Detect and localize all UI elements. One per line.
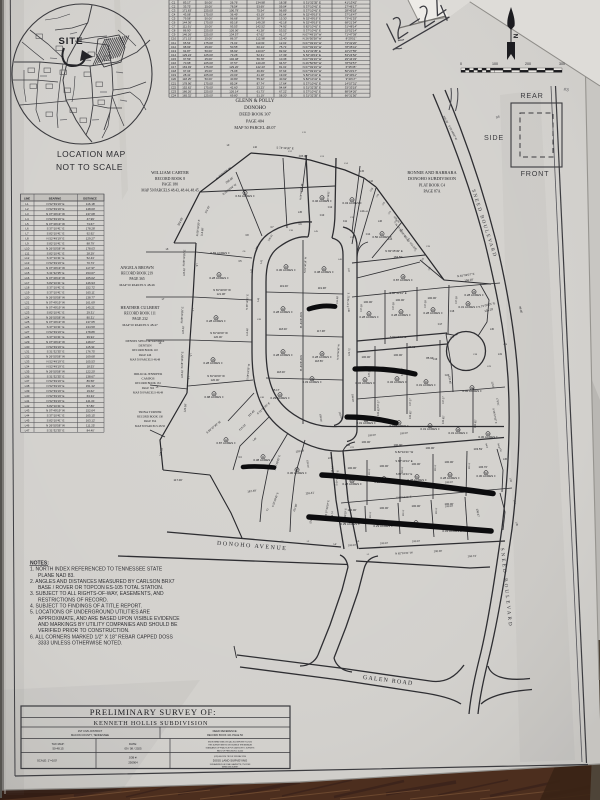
svg-text:0.61 ACRES ±: 0.61 ACRES ± [235, 194, 255, 198]
svg-text:N 07°49'19" W: N 07°49'19" W [46, 222, 65, 226]
svg-text:L15: L15 [360, 170, 365, 173]
svg-text:0.31 ACRES ±: 0.31 ACRES ± [416, 383, 436, 387]
svg-text:L31: L31 [25, 350, 30, 354]
svg-text:S 82°10'41" E: S 82°10'41" E [396, 472, 413, 476]
svg-text:0.31 ACRES ±: 0.31 ACRES ± [356, 421, 376, 425]
svg-text:RECORD BOOK 111: RECORD BOOK 111 [124, 312, 156, 316]
svg-text:JOB #:: JOB #: [129, 756, 138, 760]
svg-text:C11: C11 [343, 220, 348, 223]
svg-text:L40: L40 [25, 394, 30, 398]
svg-text:111.25': 111.25' [86, 424, 95, 428]
svg-text:165.32': 165.32' [182, 93, 192, 97]
svg-text:L23: L23 [25, 310, 30, 314]
svg-text:146.94': 146.94' [86, 281, 96, 285]
svg-text:152.64': 152.64' [86, 409, 96, 413]
svg-text:S 37°10'41" E: S 37°10'41" E [47, 286, 65, 290]
svg-text:N 52°49'19" E: N 52°49'19" E [46, 202, 64, 206]
svg-text:L15: L15 [25, 271, 30, 275]
svg-text:L29: L29 [25, 340, 30, 344]
svg-text:100.00': 100.00' [361, 355, 371, 359]
svg-text:2. ANGLES AND DISTANCES MEASU: 2. ANGLES AND DISTANCES MEASURED BY CARL… [30, 579, 175, 585]
svg-text:L39: L39 [25, 389, 30, 393]
svg-text:125.00': 125.00' [204, 93, 214, 97]
svg-text:S 31°32'35" E: S 31°32'35" E [47, 350, 65, 354]
svg-text:N 07°49'19" W: N 07°49'19" W [46, 305, 65, 309]
svg-text:L28: L28 [25, 335, 30, 339]
svg-text:0.38 ACRES ±: 0.38 ACRES ± [253, 458, 273, 462]
svg-text:PAGE 362: PAGE 362 [142, 386, 155, 390]
svg-text:165.11': 165.11' [86, 291, 96, 295]
svg-text:N 81°40'09" W: N 81°40'09" W [299, 312, 302, 329]
svg-text:86.61': 86.61' [408, 345, 416, 349]
svg-text:148.00': 148.00' [86, 207, 96, 211]
svg-text:L46: L46 [25, 424, 30, 428]
svg-text:NOT TO SCALE: NOT TO SCALE [56, 162, 123, 172]
svg-text:L18: L18 [25, 286, 30, 290]
svg-text:L10: L10 [253, 146, 258, 149]
svg-text:L44: L44 [25, 414, 30, 418]
svg-text:S 37°10'41" E: S 37°10'41" E [47, 325, 65, 329]
svg-text:S 82°10'41" E: S 82°10'41" E [390, 335, 407, 339]
svg-text:N 07°49'19" W: N 07°49'19" W [46, 212, 65, 216]
svg-text:S 82°10'41" E: S 82°10'41" E [47, 281, 65, 285]
svg-text:105.00': 105.00' [181, 369, 184, 378]
svg-text:100.00': 100.00' [348, 544, 357, 547]
svg-text:L11: L11 [25, 251, 30, 255]
svg-text:100.00': 100.00' [395, 298, 405, 302]
svg-text:117.38': 117.38' [317, 329, 326, 333]
svg-text:PLANE NAD 83.: PLANE NAD 83. [38, 573, 75, 579]
svg-text:L37: L37 [328, 457, 333, 460]
svg-text:100.00': 100.00' [363, 300, 373, 304]
svg-text:L24: L24 [25, 315, 30, 319]
svg-text:106.08': 106.08' [298, 154, 308, 158]
svg-text:N 07°49'19" W: N 07°49'19" W [46, 320, 65, 324]
svg-text:L5: L5 [25, 222, 29, 226]
svg-text:134.82': 134.82' [473, 419, 478, 428]
svg-text:0.28 ACRES ±: 0.28 ACRES ± [209, 276, 229, 280]
svg-text:VERIFIED PRIOR TO CONSTRUCTION: VERIFIED PRIOR TO CONSTRUCTION. [38, 628, 130, 634]
svg-text:105.53': 105.53' [86, 360, 96, 364]
svg-text:63.34': 63.34' [87, 394, 95, 398]
svg-text:L1: L1 [25, 202, 29, 206]
svg-text:L38: L38 [25, 384, 30, 388]
svg-text:6. ALL CORNERS MARKED 1/2" X: 6. ALL CORNERS MARKED 1/2" X 18" REBAR C… [30, 634, 174, 640]
svg-text:C12: C12 [328, 206, 333, 209]
svg-text:0.28 ACRES ±: 0.28 ACRES ± [423, 311, 443, 315]
svg-text:MAP 50 PARCELS 48.50: MAP 50 PARCELS 48.50 [135, 424, 166, 428]
svg-text:50-48.15: 50-48.15 [52, 747, 63, 751]
svg-text:250904: 250904 [128, 761, 138, 765]
svg-text:PAGE 654: PAGE 654 [144, 419, 157, 423]
svg-text:DONOHO SUBDIVISION: DONOHO SUBDIVISION [408, 176, 457, 181]
svg-text:S 31°32'35" E: S 31°32'35" E [47, 428, 65, 432]
svg-text:124.58': 124.58' [183, 403, 188, 413]
svg-text:103.59': 103.59' [473, 447, 483, 451]
svg-text:100.00': 100.00' [361, 440, 371, 444]
svg-text:178.28': 178.28' [86, 227, 96, 231]
svg-text:L9: L9 [25, 242, 29, 246]
svg-text:N 52°49'19" E: N 52°49'19" E [46, 261, 64, 265]
svg-text:S 37°10'41" E: S 37°10'41" E [47, 256, 65, 260]
svg-text:N 26°50'58" W: N 26°50'58" W [46, 355, 65, 359]
svg-text:C18: C18 [450, 310, 455, 313]
svg-text:RECORD BOOK 110: RECORD BOOK 110 [132, 348, 158, 352]
svg-text:S 82°10'41" E: S 82°10'41" E [395, 459, 412, 463]
svg-text:0.28 ACRES ±: 0.28 ACRES ± [342, 482, 362, 486]
svg-text:L3: L3 [25, 212, 29, 216]
svg-text:120.00': 120.00' [214, 335, 223, 339]
svg-text:KENNETH HOLLIS SUBDIVISION: KENNETH HOLLIS SUBDIVISION [94, 720, 209, 727]
svg-text:N 26°50'58" W: N 26°50'58" W [46, 424, 65, 428]
svg-text:L8: L8 [25, 237, 29, 241]
svg-text:0.28 ACRES ±: 0.28 ACRES ± [273, 353, 293, 357]
svg-text:L14: L14 [25, 266, 30, 270]
svg-text:IDILIO & JENNIFER: IDILIO & JENNIFER [134, 372, 163, 376]
svg-text:TAX MAP:: TAX MAP: [52, 742, 65, 746]
svg-text:FRONT: FRONT [521, 169, 550, 178]
svg-text:N 26°50'58" W: N 26°50'58" W [46, 315, 65, 319]
svg-text:DATE:: DATE: [129, 742, 137, 746]
svg-text:PAGE 232: PAGE 232 [132, 317, 148, 321]
svg-text:103.72': 103.72' [348, 347, 352, 356]
svg-text:0.32 ACRES ±: 0.32 ACRES ± [355, 381, 375, 385]
svg-text:100.00': 100.00' [411, 462, 421, 466]
svg-text:L27: L27 [25, 330, 30, 334]
svg-text:WWW.DOSS.SURVEY: WWW.DOSS.SURVEY [222, 767, 239, 769]
svg-text:80.31': 80.31' [87, 315, 95, 319]
svg-text:N 07°49'19" W: N 07°49'19" W [46, 340, 65, 344]
svg-text:28.29': 28.29' [87, 251, 95, 255]
svg-text:L35: L35 [25, 369, 30, 373]
svg-text:122.20': 122.20' [86, 369, 96, 373]
svg-text:39.94': 39.94' [87, 335, 95, 339]
svg-text:RESTRICTIONS OF RECORD.: RESTRICTIONS OF RECORD. [38, 597, 108, 603]
svg-text:5. LOCATIONS OF UNDERGROUND U: 5. LOCATIONS OF UNDERGROUND UTILITIES AR… [30, 610, 151, 616]
svg-text:118.00': 118.00' [277, 370, 286, 374]
svg-text:178.03': 178.03' [86, 246, 96, 250]
svg-text:0.28 ACRES ±: 0.28 ACRES ± [359, 315, 379, 319]
svg-text:4. SUBJECT TO FINDINGS OF A T: 4. SUBJECT TO FINDINGS OF A TITLE REPORT… [30, 604, 142, 610]
svg-text:151.38': 151.38' [336, 295, 340, 304]
svg-text:N 52°49'19" E: N 52°49'19" E [46, 365, 64, 369]
svg-text:105.00': 105.00' [183, 267, 186, 276]
svg-text:L22: L22 [25, 305, 30, 309]
svg-text:1. NORTH INDEX REFERENCED TO: 1. NORTH INDEX REFERENCED TO TENNESSEE S… [30, 567, 163, 573]
svg-text:118.56': 118.56' [315, 359, 324, 363]
svg-text:N 52°49'19" E: N 52°49'19" E [46, 384, 64, 388]
svg-text:BASE / ROVER OR TOPCON ES-105: BASE / ROVER OR TOPCON ES-105 TOTAL STAT… [38, 585, 163, 591]
svg-text:151.32': 151.32' [86, 384, 96, 388]
svg-text:RONNIE AND BARBARA: RONNIE AND BARBARA [407, 170, 457, 175]
svg-text:N 81°40'09" W: N 81°40'09" W [207, 374, 225, 378]
svg-text:100.00': 100.00' [393, 443, 403, 447]
svg-text:L20: L20 [25, 296, 30, 300]
svg-text:106.70': 106.70' [478, 465, 488, 469]
svg-text:RECORD BOOK 130: RECORD BOOK 130 [137, 415, 163, 419]
svg-text:L34: L34 [25, 365, 30, 369]
svg-text:141.01': 141.01' [86, 399, 96, 403]
svg-text:L43: L43 [25, 409, 30, 413]
svg-text:N 07°49'19" W: N 07°49'19" W [46, 276, 65, 280]
svg-text:0.69 ACRES ±: 0.69 ACRES ± [210, 251, 230, 255]
svg-text:L42: L42 [25, 404, 30, 408]
svg-text:L45: L45 [298, 211, 303, 214]
svg-text:L41: L41 [25, 399, 30, 403]
svg-text:18.53': 18.53' [87, 365, 95, 369]
svg-text:100.00': 100.00' [434, 549, 443, 553]
svg-text:L30: L30 [490, 328, 495, 331]
svg-text:0.28 ACRES ±: 0.28 ACRES ± [440, 476, 460, 480]
svg-text:100: 100 [492, 62, 498, 66]
svg-text:N 52°49'19" E: N 52°49'19" E [46, 207, 64, 211]
svg-text:L47: L47 [25, 428, 30, 432]
svg-text:121.38': 121.38' [217, 292, 226, 296]
svg-text:0.87 ACRES ±: 0.87 ACRES ± [216, 441, 236, 445]
svg-text:19.62': 19.62' [87, 389, 95, 393]
svg-text:137.65': 137.65' [86, 320, 96, 324]
svg-text:PAGE 87A: PAGE 87A [423, 190, 440, 194]
svg-text:138.77': 138.77' [86, 296, 96, 300]
svg-text:100.00': 100.00' [445, 481, 454, 485]
svg-text:86.58': 86.58' [87, 379, 95, 383]
svg-text:APPROXIMATE, AND ARE BASED UPO: APPROXIMATE, AND ARE BASED UPON VISIBLE … [38, 616, 180, 622]
svg-text:0.38 ACRES ±: 0.38 ACRES ± [314, 270, 334, 274]
svg-text:STANDARDS OF PRACTICE FOR CATE: STANDARDS OF PRACTICE FOR CATEGORY 1 SUR… [206, 747, 256, 750]
svg-text:0.28 ACRES ±: 0.28 ACRES ± [273, 310, 293, 314]
svg-text:PAGE 404: PAGE 404 [246, 118, 265, 123]
svg-text:57.80': 57.80' [87, 404, 95, 408]
svg-text:RECORD BOOK 161: RECORD BOOK 161 [135, 381, 161, 385]
svg-text:S 31°32'35" E: S 31°32'35" E [47, 374, 65, 378]
svg-text:RATIO OF PRECISION 1:10,000: RATIO OF PRECISION 1:10,000 [217, 749, 243, 752]
svg-text:N 52°49'19" E: N 52°49'19" E [46, 217, 64, 221]
svg-text:SIDE: SIDE [484, 133, 504, 142]
svg-text:N 82°10'41" W: N 82°10'41" W [395, 450, 414, 454]
svg-text:L45: L45 [25, 419, 30, 423]
svg-text:L12: L12 [25, 256, 30, 260]
svg-text:0.28 ACRES ±: 0.28 ACRES ± [203, 361, 223, 365]
svg-text:N 07°49'19" W: N 07°49'19" W [46, 266, 65, 270]
svg-text:165.15': 165.15' [86, 414, 96, 418]
svg-text:TRINA TURNER: TRINA TURNER [138, 410, 162, 414]
svg-text:S 31°32'35" E: S 31°32'35" E [303, 93, 321, 97]
svg-text:S 82°10'41" E: S 82°10'41" E [47, 251, 65, 255]
svg-text:0.28 ACRES ±: 0.28 ACRES ± [464, 293, 484, 297]
svg-text:0.30 ACRES ±: 0.30 ACRES ± [478, 435, 498, 439]
svg-text:117.00': 117.00' [174, 478, 183, 482]
svg-text:RECORD BOOK 219: RECORD BOOK 219 [121, 272, 153, 276]
svg-text:C17: C17 [438, 323, 443, 326]
svg-text:153.67': 153.67' [86, 271, 96, 275]
svg-text:N 52°49'19" E: N 52°49'19" E [46, 237, 64, 241]
svg-text:0.29 ACRES ±: 0.29 ACRES ± [270, 396, 290, 400]
svg-text:N 52°49'19" E: N 52°49'19" E [46, 399, 64, 403]
svg-text:100.00': 100.00' [380, 542, 389, 545]
svg-text:S 31°32'35" E: S 31°32'35" E [47, 271, 65, 275]
svg-text:100.00': 100.00' [444, 460, 454, 464]
svg-text:200: 200 [525, 62, 531, 66]
svg-text:0.45 ACRES ±: 0.45 ACRES ± [462, 389, 482, 393]
svg-text:0.87 ACRES ±: 0.87 ACRES ± [393, 278, 413, 282]
svg-text:0: 0 [460, 62, 462, 66]
svg-text:BEARING: BEARING [49, 196, 61, 200]
svg-text:100.00': 100.00' [347, 508, 357, 512]
svg-text:C24: C24 [171, 93, 177, 97]
svg-text:145.21': 145.21' [86, 305, 96, 309]
svg-text:100.00': 100.00' [411, 504, 421, 508]
svg-text:165.02': 165.02' [86, 276, 96, 280]
svg-text:L10: L10 [25, 246, 30, 250]
svg-text:116.18': 116.18' [86, 202, 96, 206]
svg-text:S 82°10'41" E: S 82°10'41" E [47, 419, 65, 423]
svg-text:MAP 50 PARCELS 48.47: MAP 50 PARCELS 48.47 [122, 323, 158, 327]
svg-text:0.31 ACRES ±: 0.31 ACRES ± [448, 431, 468, 435]
svg-text:100.00': 100.00' [427, 296, 437, 300]
svg-text:PAGE 446: PAGE 446 [139, 353, 152, 357]
svg-text:0.28 ACRES ±: 0.28 ACRES ± [206, 319, 226, 323]
svg-text:65.17': 65.17' [272, 388, 280, 392]
svg-text:52.43': 52.43' [87, 256, 95, 260]
svg-text:PAGE 365: PAGE 365 [129, 277, 145, 281]
svg-text:L19: L19 [25, 291, 30, 295]
svg-text:N 52°49'19" E: N 52°49'19" E [46, 345, 64, 349]
svg-text:300: 300 [559, 62, 565, 66]
svg-text:L46: L46 [378, 220, 383, 223]
svg-text:SITE: SITE [58, 36, 83, 47]
svg-text:L13: L13 [25, 261, 30, 265]
svg-text:0.33 ACRES ±: 0.33 ACRES ± [302, 380, 322, 384]
svg-text:163.12': 163.12' [86, 419, 96, 423]
svg-text:PAGE 180: PAGE 180 [162, 183, 178, 187]
svg-text:L31: L31 [498, 353, 503, 356]
svg-text:137.08': 137.08' [86, 212, 96, 216]
svg-text:C10: C10 [320, 214, 325, 217]
svg-text:N 81°40'09" W: N 81°40'09" W [299, 355, 302, 372]
svg-text:84.40': 84.40' [87, 428, 95, 432]
svg-text:DOSS LAND SURVEYING: DOSS LAND SURVEYING [213, 758, 248, 762]
svg-text:C14: C14 [366, 233, 371, 236]
svg-text:178.86': 178.86' [86, 330, 96, 334]
svg-text:0.31 ACRES ±: 0.31 ACRES ± [420, 427, 440, 431]
svg-text:N 26°50'58" W: N 26°50'58" W [46, 369, 65, 373]
svg-text:S 82°10'41" E: S 82°10'41" E [47, 404, 65, 408]
svg-text:70.73': 70.73' [87, 261, 95, 265]
svg-text:DEED REFERENCE:: DEED REFERENCE: [213, 729, 238, 733]
svg-text:S 37°10'41" E: S 37°10'41" E [47, 335, 65, 339]
svg-text:09 / 08 / 2025: 09 / 08 / 2025 [124, 747, 142, 751]
svg-text:119.00': 119.00' [280, 284, 289, 288]
svg-text:SCALE: 1"=100': SCALE: 1"=100' [37, 759, 58, 763]
svg-text:119.38': 119.38' [318, 286, 327, 290]
svg-text:161.69': 161.69' [86, 301, 96, 305]
svg-text:L25: L25 [25, 320, 30, 324]
svg-text:114.68': 114.68' [246, 327, 249, 336]
svg-text:L17: L17 [25, 281, 30, 285]
svg-text:N 26°50'58" W: N 26°50'58" W [46, 296, 65, 300]
svg-text:115.91': 115.91' [86, 345, 96, 349]
svg-text:L4: L4 [25, 217, 29, 221]
svg-text:DENTON: DENTON [138, 344, 152, 348]
svg-text:L33: L33 [25, 360, 30, 364]
svg-text:176.75': 176.75' [86, 350, 96, 354]
svg-text:51.19': 51.19' [257, 93, 265, 97]
svg-text:138.67': 138.67' [86, 374, 96, 378]
svg-text:120.00': 120.00' [211, 378, 220, 382]
svg-text:N: N [512, 34, 519, 39]
svg-text:N 52°49'19" E: N 52°49'19" E [46, 394, 64, 398]
svg-text:116.41': 116.41' [305, 491, 315, 496]
svg-text:THIS SURVEY MEETS OR EXCEEDS T: THIS SURVEY MEETS OR EXCEEDS THE MINIMUM [208, 745, 252, 747]
svg-text:L6: L6 [25, 227, 29, 231]
svg-text:MAP 50 PARCELS 48.46: MAP 50 PARCELS 48.46 [119, 283, 155, 287]
svg-text:N 81°40'09" W: N 81°40'09" W [210, 331, 228, 335]
svg-text:KNOW WHAT'S BELOW CALL 811 BEF: KNOW WHAT'S BELOW CALL 811 BEFORE YOU DI… [208, 741, 253, 744]
svg-text:100.00': 100.00' [412, 540, 421, 543]
svg-text:S 37°10'41" E: S 37°10'41" E [47, 414, 65, 418]
svg-text:N 52°49'19" E: N 52°49'19" E [46, 389, 64, 393]
svg-text:ANGELA BROWN: ANGELA BROWN [120, 265, 154, 270]
svg-text:0.32 ACRES ±: 0.32 ACRES ± [387, 380, 407, 384]
svg-text:L7: L7 [25, 232, 29, 236]
svg-text:100.00': 100.00' [379, 506, 389, 510]
svg-text:L36: L36 [503, 458, 508, 461]
svg-text:73.67': 73.67' [87, 222, 95, 226]
svg-text:105.00': 105.00' [182, 325, 185, 334]
svg-text:REAR: REAR [520, 91, 543, 100]
svg-text:100.00': 100.00' [445, 505, 454, 509]
svg-text:LINE: LINE [24, 196, 30, 200]
svg-text:L2: L2 [25, 207, 29, 211]
svg-text:N 26°50'58" W: N 26°50'58" W [46, 246, 65, 250]
svg-text:3333 UNLESS OTHERWISE NOTED.: 3333 UNLESS OTHERWISE NOTED. [38, 640, 122, 646]
svg-text:1ST CIVIL DISTRICT: 1ST CIVIL DISTRICT [78, 729, 103, 733]
svg-text:MAP 50 PARCELS 48.48: MAP 50 PARCELS 48.48 [130, 357, 161, 361]
svg-text:AND MARKINGS BY UTILITY COMPAN: AND MARKINGS BY UTILITY COMPANIES AND SH… [38, 622, 178, 628]
svg-text:RECORD BOOK 8: RECORD BOOK 8 [155, 177, 185, 181]
svg-text:100.00': 100.00' [393, 353, 403, 357]
svg-text:69.80': 69.80' [230, 93, 238, 97]
svg-text:0.28 ACRES ±: 0.28 ACRES ± [312, 355, 332, 359]
svg-text:0.30 ACRES ±: 0.30 ACRES ± [287, 471, 307, 475]
svg-text:N 82°45'49" E: N 82°45'49" E [385, 249, 403, 253]
svg-text:117.97': 117.97' [86, 266, 96, 270]
svg-text:N 52°49'19" E: N 52°49'19" E [46, 379, 64, 383]
svg-text:L30: L30 [25, 345, 30, 349]
svg-text:MAP 50 PARCELS 48.49: MAP 50 PARCELS 48.49 [133, 390, 164, 394]
svg-text:WILLIAM CARTER: WILLIAM CARTER [151, 170, 189, 175]
svg-text:S 82°10'41" E: S 82°10'41" E [47, 232, 65, 236]
svg-text:29.31': 29.31' [87, 310, 95, 314]
svg-text:N 81°40'09" W: N 81°40'09" W [213, 288, 231, 292]
svg-text:92.92': 92.92' [87, 232, 95, 236]
svg-text:DEED BOOK 307: DEED BOOK 307 [239, 112, 270, 117]
svg-text:CAMPOS: CAMPOS [141, 377, 154, 381]
svg-text:148.07': 148.07' [86, 340, 96, 344]
svg-text:100.00': 100.00' [425, 446, 435, 450]
svg-text:N 08°19'35" E: N 08°19'35" E [180, 351, 185, 368]
svg-text:L26: L26 [25, 325, 30, 329]
svg-text:88.79': 88.79' [87, 242, 95, 246]
svg-text:N 07°49'19" W: N 07°49'19" W [46, 301, 65, 305]
svg-text:N 52°49'19" E: N 52°49'19" E [46, 360, 64, 364]
svg-text:118.00': 118.00' [279, 327, 288, 331]
svg-text:3149 AKERSVILLE ROAD LAFAYETTE: 3149 AKERSVILLE ROAD LAFAYETTE, TN 37083 [210, 763, 250, 766]
svg-text:0.98 ACRES ±: 0.98 ACRES ± [204, 395, 224, 399]
svg-text:S 37°10'41" E: S 37°10'41" E [47, 227, 65, 231]
svg-text:L16: L16 [25, 276, 30, 280]
svg-text:RECORD BOOK 101 PAGE 56: RECORD BOOK 101 PAGE 56 [207, 733, 243, 737]
